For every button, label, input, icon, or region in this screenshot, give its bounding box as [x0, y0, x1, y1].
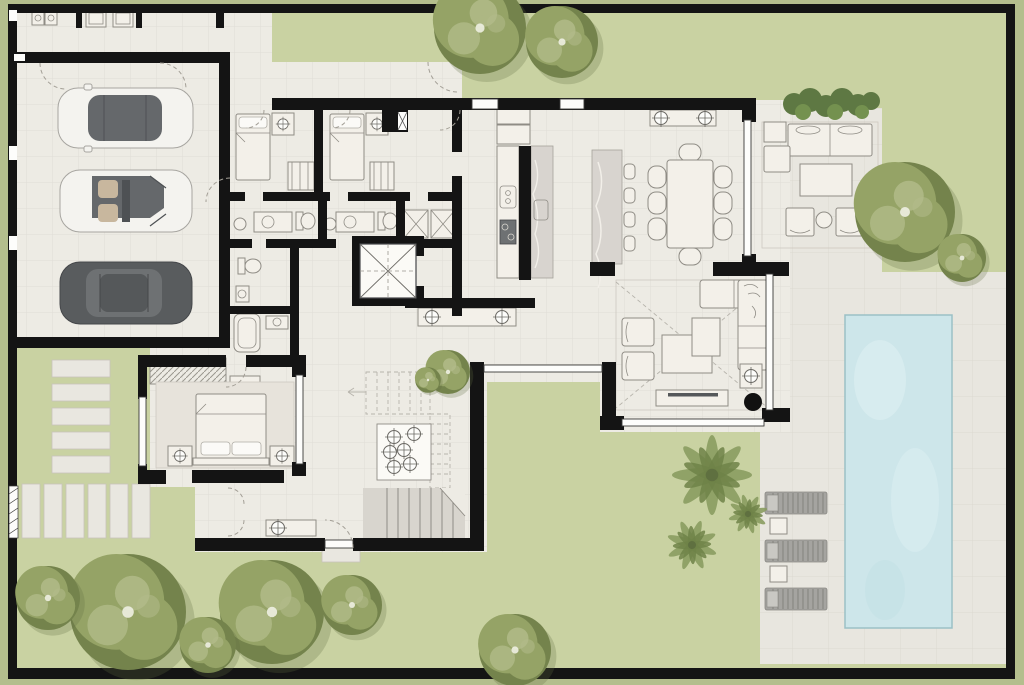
- car-hatchback-icon: [60, 262, 192, 324]
- lower-flight: [363, 488, 465, 540]
- outdoor-coffee-table: [800, 164, 852, 196]
- dining-window: [560, 99, 584, 109]
- side-gate: [9, 486, 18, 538]
- living-south-window: [622, 419, 764, 426]
- nightstand: [270, 446, 294, 466]
- floor-lamp-icon: [744, 393, 762, 411]
- courtyard-window: [484, 365, 602, 372]
- sun-lounger: [765, 540, 827, 562]
- outdoor-chair: [786, 208, 814, 236]
- outdoor-sofa: [788, 124, 872, 156]
- nightstand: [168, 446, 192, 466]
- master-east-window: [296, 375, 303, 464]
- dining-console: [650, 109, 716, 127]
- floor-plan-svg: [0, 0, 1024, 685]
- double-bed: [193, 394, 269, 465]
- car-convertible-icon: [60, 170, 192, 232]
- armchair: [622, 352, 654, 380]
- pool-side-table: [770, 566, 787, 582]
- hall-console: [418, 308, 516, 326]
- garage: [58, 84, 193, 324]
- tv-console: [656, 390, 728, 406]
- master-west-window: [139, 397, 146, 466]
- armchair: [622, 318, 654, 346]
- outdoor-chair: [764, 146, 790, 172]
- side-table: [740, 364, 762, 388]
- pool-side-table: [770, 518, 787, 534]
- entry-hall: [266, 519, 316, 537]
- kitchen-window: [472, 99, 498, 109]
- spotlight-panel: [377, 424, 431, 480]
- sun-lounger: [765, 588, 827, 610]
- sun-lounger: [765, 492, 827, 514]
- floor-plan-image: [0, 0, 1024, 685]
- living-east-glass: [766, 274, 773, 410]
- round-side-table: [816, 212, 832, 228]
- coffee-table: [692, 318, 720, 356]
- terrace-glass-wall: [744, 120, 751, 256]
- entry-door-glass: [325, 540, 353, 548]
- car-sedan-icon: [58, 84, 193, 152]
- elevator-icon: [360, 244, 416, 298]
